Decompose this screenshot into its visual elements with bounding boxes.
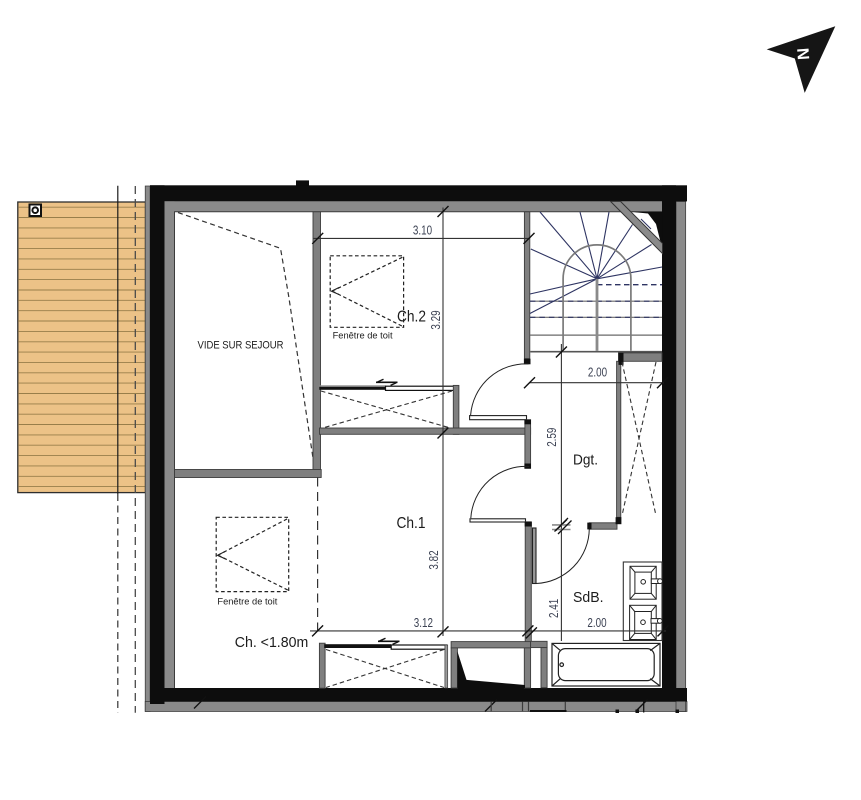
svg-text:2.00: 2.00	[588, 365, 607, 380]
svg-text:Fenêtre de toit: Fenêtre de toit	[217, 597, 277, 608]
svg-text:VIDE SUR SEJOUR: VIDE SUR SEJOUR	[198, 339, 284, 351]
svg-text:3.29: 3.29	[428, 310, 443, 329]
svg-text:3.10: 3.10	[413, 222, 432, 237]
svg-text:Ch. <1.80m: Ch. <1.80m	[235, 635, 309, 651]
svg-text:2.00: 2.00	[587, 615, 606, 630]
svg-text:3.12: 3.12	[414, 615, 433, 630]
svg-text:Fenêtre de toit: Fenêtre de toit	[333, 331, 393, 342]
svg-text:2.41: 2.41	[546, 599, 561, 618]
svg-text:Ch.1: Ch.1	[397, 515, 426, 532]
svg-text:SdB.: SdB.	[573, 590, 604, 606]
svg-text:Ch.2: Ch.2	[397, 308, 426, 325]
svg-text:3.82: 3.82	[426, 550, 441, 569]
svg-text:N: N	[793, 47, 812, 60]
svg-text:2.59: 2.59	[544, 428, 559, 447]
svg-text:Dgt.: Dgt.	[573, 453, 598, 469]
